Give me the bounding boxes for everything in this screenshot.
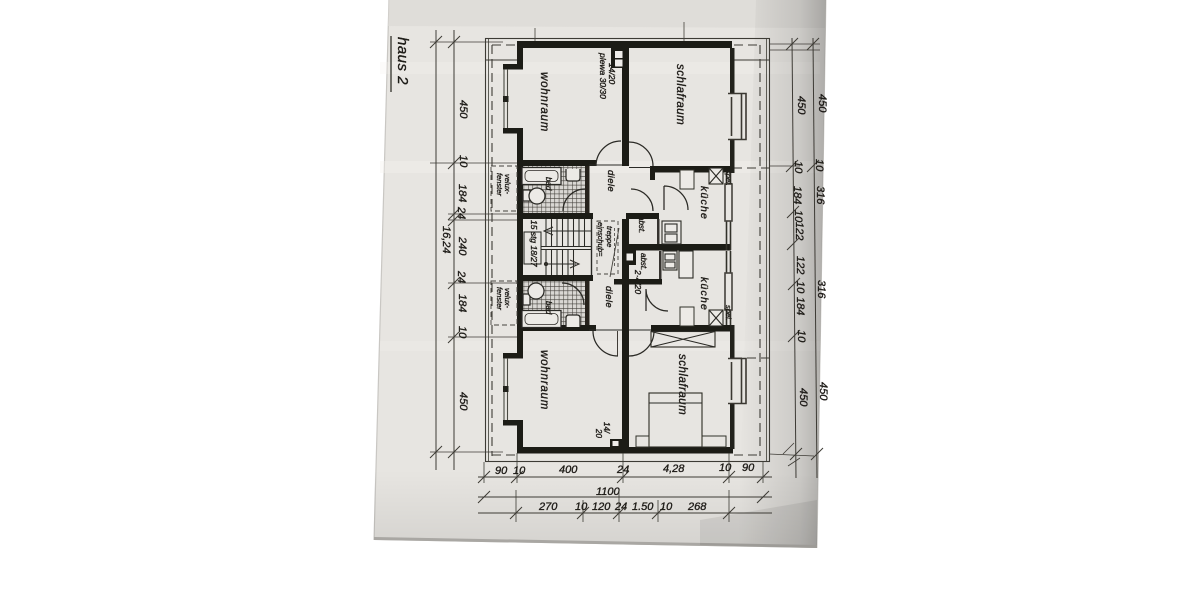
svg-text:treppe: treppe — [605, 226, 614, 247]
svg-text:450: 450 — [457, 100, 469, 119]
svg-text:316: 316 — [815, 280, 827, 299]
svg-text:10: 10 — [792, 161, 804, 174]
svg-text:184: 184 — [794, 297, 806, 315]
svg-text:1100: 1100 — [596, 486, 621, 498]
svg-text:450: 450 — [816, 94, 828, 113]
svg-text:122: 122 — [793, 222, 805, 240]
svg-text:wohnraum: wohnraum — [538, 350, 550, 410]
svg-text:120: 120 — [592, 501, 611, 513]
svg-text:10: 10 — [456, 326, 468, 339]
svg-text:240: 240 — [456, 236, 468, 256]
svg-text:20: 20 — [594, 428, 603, 438]
svg-text:90: 90 — [495, 465, 508, 477]
svg-text:schlafraum: schlafraum — [674, 64, 686, 125]
svg-text:400: 400 — [559, 464, 578, 476]
svg-text:184: 184 — [456, 184, 468, 202]
svg-text:einschub=: einschub= — [596, 222, 605, 257]
svg-text:1.50: 1.50 — [632, 501, 654, 513]
svg-text:bad: bad — [544, 177, 553, 191]
svg-text:24: 24 — [455, 206, 467, 219]
svg-text:450: 450 — [457, 392, 469, 411]
svg-text:velux-: velux- — [503, 174, 512, 195]
svg-text:fenster: fenster — [495, 173, 504, 196]
svg-text:4,28: 4,28 — [663, 463, 685, 475]
svg-text:diele: diele — [603, 286, 614, 308]
svg-text:abst.: abst. — [639, 253, 648, 270]
svg-text:184: 184 — [456, 294, 468, 312]
svg-text:bad: bad — [544, 301, 553, 315]
svg-text:90: 90 — [742, 462, 755, 474]
svg-text:spei.: spei. — [724, 170, 733, 186]
svg-text:184: 184 — [791, 186, 803, 204]
svg-text:122: 122 — [794, 256, 806, 274]
svg-text:haus 2: haus 2 — [394, 37, 411, 85]
svg-text:küche: küche — [698, 277, 710, 311]
svg-text:fenster: fenster — [495, 287, 504, 310]
svg-text:10: 10 — [660, 501, 673, 513]
svg-text:24: 24 — [455, 270, 467, 283]
svg-text:15 stg 18/27: 15 stg 18/27 — [529, 220, 539, 267]
svg-text:316: 316 — [814, 186, 826, 205]
svg-text:velux-: velux- — [503, 288, 512, 309]
svg-text:10: 10 — [513, 465, 526, 477]
svg-text:450: 450 — [795, 96, 807, 115]
svg-text:10: 10 — [457, 155, 469, 168]
svg-text:10: 10 — [813, 159, 825, 172]
svg-text:10: 10 — [794, 281, 806, 294]
svg-text:schlafraum: schlafraum — [676, 354, 688, 415]
svg-text:10: 10 — [719, 462, 732, 474]
svg-text:spei.: spei. — [724, 305, 733, 321]
svg-text:268: 268 — [687, 501, 707, 513]
svg-text:10: 10 — [795, 330, 807, 343]
svg-text:24: 24 — [614, 501, 627, 513]
svg-text:wohnraum: wohnraum — [538, 72, 550, 132]
svg-text:270: 270 — [538, 501, 558, 513]
svg-text:450: 450 — [797, 388, 809, 407]
svg-text:abst.: abst. — [637, 216, 646, 233]
svg-text:24: 24 — [616, 464, 629, 476]
svg-text:2·4/20: 2·4/20 — [633, 269, 643, 294]
svg-text:plewa 30/30: plewa 30/30 — [598, 52, 608, 99]
svg-text:10: 10 — [575, 501, 588, 513]
svg-text:450: 450 — [817, 382, 829, 401]
svg-text:küche: küche — [698, 186, 710, 220]
svg-text:diele: diele — [605, 170, 616, 192]
svg-text:16,24: 16,24 — [440, 226, 452, 254]
